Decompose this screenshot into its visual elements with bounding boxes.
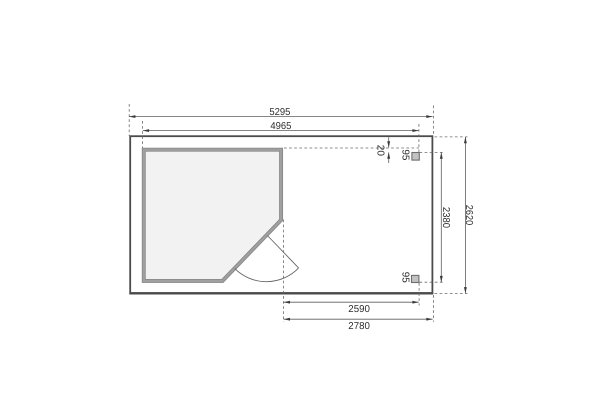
svg-text:20: 20 (375, 145, 386, 157)
svg-text:2780: 2780 (348, 321, 370, 332)
svg-text:95: 95 (400, 272, 411, 283)
svg-text:2380: 2380 (440, 207, 451, 229)
svg-text:5295: 5295 (269, 107, 290, 118)
svg-text:2620: 2620 (463, 205, 474, 226)
svg-text:95: 95 (399, 149, 410, 160)
svg-text:2590: 2590 (348, 304, 370, 315)
svg-text:4965: 4965 (270, 121, 291, 132)
